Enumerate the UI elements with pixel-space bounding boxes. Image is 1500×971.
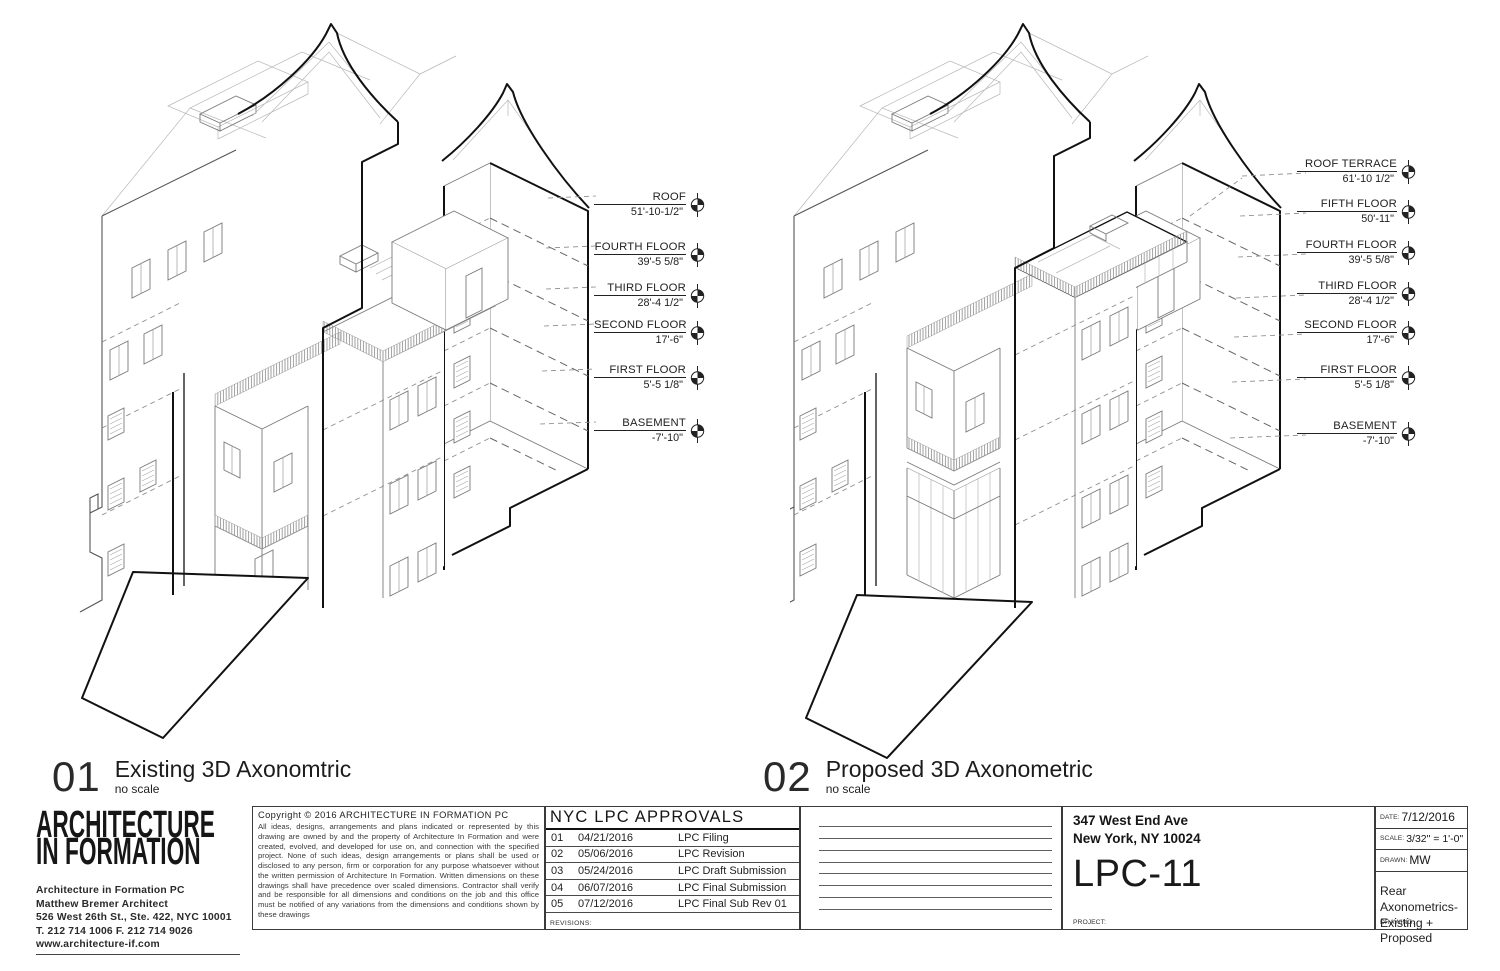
drawn-row: DRAWN: MW (1376, 850, 1467, 872)
level-marker-first: FIRST FLOOR5'-5 1/8" (594, 364, 706, 391)
blank-line (819, 838, 1052, 839)
firm-logo: ARCHITECTURE IN FORMATION (36, 806, 248, 884)
level-name: THIRD FLOOR (1297, 280, 1397, 294)
lpc-approvals-title: NYC LPC APPROVALS (546, 807, 799, 830)
level-elevation: -7'-10" (594, 431, 686, 444)
approval-desc: LPC Final Sub Rev 01 (678, 898, 799, 910)
blank-line (819, 850, 1052, 851)
lpc-approval-row: 01 04/21/2016 LPC Filing (546, 830, 799, 847)
level-elevation: -7'-10" (1297, 434, 1397, 447)
level-marker-fifth: FIFTH FLOOR50'-11" (1297, 198, 1417, 225)
approval-number: 04 (546, 882, 578, 894)
drawing-label: DRAWING: (1380, 919, 1415, 926)
blank-line (819, 897, 1052, 898)
blank-revision-lines-box (800, 806, 1062, 930)
date-label: DATE: (1380, 814, 1400, 821)
datum-icon (689, 284, 706, 308)
scale-row: SCALE: 3/32" = 1'-0" (1376, 829, 1467, 851)
level-name: ROOF TERRACE (1297, 158, 1397, 172)
project-address-line-1: 347 West End Ave (1073, 812, 1364, 830)
level-marker-basement: BASEMENT-7'-10" (1297, 420, 1417, 447)
level-elevation: 28'-4 1/2" (1297, 294, 1397, 307)
level-elevation: 39'-5 5/8" (1297, 253, 1397, 266)
drawing-title-line-1: Rear Axonometrics- (1380, 884, 1463, 916)
storefront (907, 462, 1000, 598)
view-title: Existing 3D Axonomtric (115, 757, 351, 781)
level-elevation: 50'-11" (1297, 212, 1397, 225)
approval-number: 01 (546, 832, 578, 844)
existing-view-caption: 01 Existing 3D Axonomtric no scale (52, 757, 351, 797)
approval-date: 05/24/2016 (578, 865, 678, 877)
firm-name: Architecture in Formation PC (36, 884, 248, 898)
copyright-box: Copyright © 2016 ARCHITECTURE IN FORMATI… (252, 806, 545, 930)
date-value: 7/12/2016 (1402, 810, 1455, 824)
center-gable (930, 24, 1090, 122)
blank-line (819, 885, 1052, 886)
blank-line (819, 873, 1052, 874)
approval-number: 03 (546, 865, 578, 877)
logo-rule (36, 954, 240, 955)
datum-icon (689, 321, 706, 345)
lpc-approval-row: 02 05/06/2016 LPC Revision (546, 847, 799, 864)
bay-window (907, 274, 1032, 471)
drawn-value: MW (1409, 853, 1430, 867)
level-marker-third: THIRD FLOOR28'-4 1/2" (594, 282, 706, 309)
sheet-info-column: DATE: 7/12/2016 SCALE: 3/32" = 1'-0" DRA… (1375, 806, 1468, 930)
drawing-sheet: ROOF51'-10-1/2" FOURTH FLOOR39'-5 5/8" T… (0, 0, 1500, 971)
datum-icon (1400, 321, 1417, 345)
datum-icon (1400, 241, 1417, 265)
blank-line (819, 862, 1052, 863)
datum-icon (1400, 422, 1417, 446)
drawing-title: Rear Axonometrics- Existing + Proposed (1376, 872, 1467, 947)
project-address-line-2: New York, NY 10024 (1073, 830, 1364, 848)
level-marker-roof: ROOF51'-10-1/2" (594, 191, 706, 218)
drawn-label: DRAWN: (1380, 857, 1407, 864)
view-number: 02 (763, 757, 812, 797)
approval-desc: LPC Final Submission (678, 882, 799, 894)
level-elevation: 51'-10-1/2" (594, 205, 686, 218)
level-marker-fourth: FOURTH FLOOR39'-5 5/8" (1297, 239, 1417, 266)
lpc-approval-row: 04 06/07/2016 LPC Final Submission (546, 880, 799, 897)
firm-logo-block: ARCHITECTURE IN FORMATION Architecture i… (36, 806, 248, 930)
level-name: SECOND FLOOR (1297, 319, 1397, 333)
subject-facade (1015, 268, 1136, 608)
blank-line (819, 826, 1052, 827)
level-marker-second: SECOND FLOOR17'-6" (594, 319, 706, 346)
proposed-view-caption: 02 Proposed 3D Axonometric no scale (763, 757, 1093, 797)
lpc-approval-row: 05 07/12/2016 LPC Final Sub Rev 01 (546, 896, 799, 913)
level-name: ROOF (594, 191, 686, 205)
level-marker-first: FIRST FLOOR5'-5 1/8" (1297, 364, 1417, 391)
project-label: PROJECT: (1073, 919, 1106, 926)
rear-yard (806, 595, 1032, 758)
approval-desc: LPC Draft Submission (678, 865, 799, 877)
firm-phone: T. 212 714 1006 F. 212 714 9026 (36, 925, 248, 939)
view-scale-note: no scale (115, 782, 351, 796)
firm-address: 526 West 26th St., Ste. 422, NYC 10001 (36, 911, 248, 925)
existing-axon-drawing (40, 10, 600, 765)
level-name: FIRST FLOOR (594, 364, 686, 378)
revisions-label: REVISIONS: (550, 920, 592, 927)
view-scale-note: no scale (826, 782, 1093, 796)
level-marker-third: THIRD FLOOR28'-4 1/2" (1297, 280, 1417, 307)
approval-date: 05/06/2016 (578, 848, 678, 860)
view-number: 01 (52, 757, 101, 797)
sheet-number: LPC-11 (1073, 853, 1202, 896)
logo-line-2: IN FORMATION (36, 833, 214, 871)
level-name: FIRST FLOOR (1297, 364, 1397, 378)
blank-line (819, 909, 1052, 910)
approval-desc: LPC Revision (678, 848, 799, 860)
level-name: FIFTH FLOOR (1297, 198, 1397, 212)
lpc-approval-row: 03 05/24/2016 LPC Draft Submission (546, 863, 799, 880)
level-elevation: 61'-10 1/2" (1297, 172, 1397, 185)
lpc-approvals-box: NYC LPC APPROVALS 01 04/21/2016 LPC Fili… (545, 806, 800, 930)
datum-icon (1400, 160, 1417, 184)
datum-icon (689, 193, 706, 217)
view-title: Proposed 3D Axonometric (826, 757, 1093, 781)
datum-icon (1400, 282, 1417, 306)
approval-number: 05 (546, 898, 578, 910)
date-row: DATE: 7/12/2016 (1376, 807, 1467, 829)
approval-date: 06/07/2016 (578, 882, 678, 894)
level-elevation: 17'-6" (594, 333, 686, 346)
project-box: 347 West End Ave New York, NY 10024 LPC-… (1062, 806, 1375, 930)
copyright-body: All ideas, designs, arrangements and pla… (258, 822, 539, 920)
level-elevation: 17'-6" (1297, 333, 1397, 346)
datum-icon (1400, 366, 1417, 390)
approval-date: 07/12/2016 (578, 898, 678, 910)
copyright-title: Copyright © 2016 ARCHITECTURE IN FORMATI… (258, 810, 539, 820)
level-name: FOURTH FLOOR (1297, 239, 1397, 253)
center-gable (238, 24, 398, 122)
level-marker-roof-terrace: ROOF TERRACE61'-10 1/2" (1297, 158, 1417, 185)
level-elevation: 5'-5 1/8" (594, 378, 686, 391)
level-name: BASEMENT (594, 417, 686, 431)
level-name: BASEMENT (1297, 420, 1397, 434)
rear-yard (82, 572, 308, 738)
approval-desc: LPC Filing (678, 832, 799, 844)
level-elevation: 39'-5 5/8" (594, 255, 686, 268)
datum-icon (689, 243, 706, 267)
scale-value: 3/32" = 1'-0" (1406, 833, 1463, 845)
level-marker-basement: BASEMENT-7'-10" (594, 417, 706, 444)
level-name: FOURTH FLOOR (594, 241, 686, 255)
level-name: SECOND FLOOR (594, 319, 686, 333)
approval-date: 04/21/2016 (578, 832, 678, 844)
subject-facade (323, 332, 444, 608)
scale-label: SCALE: (1380, 835, 1404, 842)
datum-icon (689, 366, 706, 390)
level-marker-second: SECOND FLOOR17'-6" (1297, 319, 1417, 346)
title-block: ARCHITECTURE IN FORMATION Architecture i… (36, 806, 1468, 930)
datum-icon (1400, 200, 1417, 224)
approval-number: 02 (546, 848, 578, 860)
level-name: THIRD FLOOR (594, 282, 686, 296)
firm-principal: Matthew Bremer Architect (36, 898, 248, 912)
firm-website[interactable]: www.architecture-if.com (36, 938, 248, 952)
level-elevation: 28'-4 1/2" (594, 296, 686, 309)
datum-icon (689, 419, 706, 443)
proposed-axon-drawing (790, 10, 1310, 770)
level-elevation: 5'-5 1/8" (1297, 378, 1397, 391)
level-marker-fourth: FOURTH FLOOR39'-5 5/8" (594, 241, 706, 268)
